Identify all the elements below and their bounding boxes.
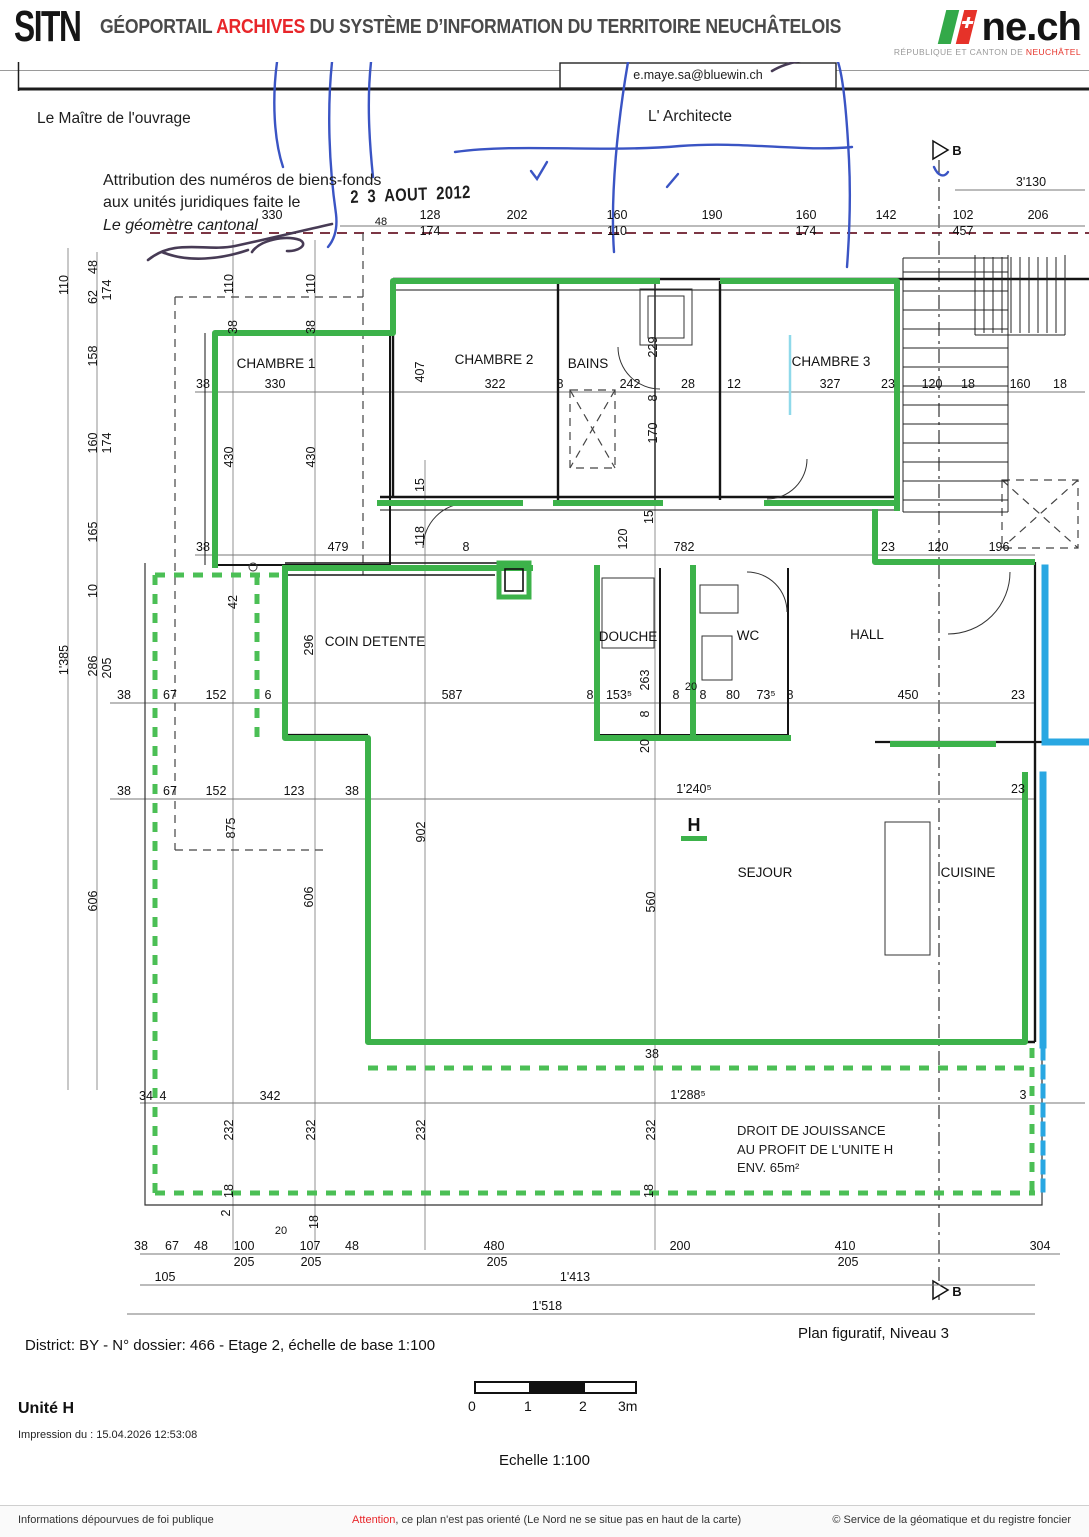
district-line: District: BY - N° dossier: 466 - Etage 2… <box>25 1337 435 1354</box>
other-unit-blue-boundary <box>1043 568 1089 1190</box>
dim-label: 479 <box>328 540 349 554</box>
dim-label: 1'413 <box>560 1270 590 1284</box>
dim-label: 170 <box>646 423 660 444</box>
dim-label: 606 <box>86 891 100 912</box>
dim-label: 48 <box>194 1239 208 1253</box>
dim-label: 8 <box>463 540 470 554</box>
dim-label: 80 <box>726 688 740 702</box>
dim-label: 67 <box>163 688 177 702</box>
dim-label: 110 <box>57 275 71 295</box>
room-label: WC <box>737 628 760 643</box>
dim-label: 606 <box>302 887 316 908</box>
walls <box>205 279 1089 1042</box>
dim-label: 23 <box>881 540 895 554</box>
dim-label: 28 <box>681 377 695 391</box>
dim-label: 174 <box>100 280 114 301</box>
impression-date: Impression du : 15.04.2026 12:53:08 <box>18 1429 197 1441</box>
dim-label: 205 <box>234 1255 255 1269</box>
dim-label: 118 <box>413 526 427 546</box>
dim-label: 18 <box>1053 377 1067 391</box>
dim-label: 200 <box>670 1239 691 1253</box>
jouissance-line2: AU PROFIT DE L'UNITE H <box>737 1141 893 1160</box>
dim-label: 174 <box>420 224 441 238</box>
dim-label: 120 <box>928 540 949 554</box>
dim-label: H <box>688 815 701 835</box>
dim-label: B <box>952 143 961 158</box>
unit-label: Unité H <box>18 1400 74 1418</box>
dim-label: 6 <box>265 688 272 702</box>
dim-label: 782 <box>674 540 695 554</box>
dim-label: 902 <box>414 822 428 843</box>
dim-label: 38 <box>134 1239 148 1253</box>
dim-label: 38 <box>304 320 318 334</box>
dim-label: 34 <box>139 1089 153 1103</box>
dim-label: 23 <box>1011 688 1025 702</box>
portal-title-post: DU SYSTÈME D’INFORMATION DU TERRITOIRE N… <box>305 16 841 38</box>
jouissance-note: DROIT DE JOUISSANCE AU PROFIT DE L'UNITE… <box>737 1122 893 1178</box>
dim-label: 8 <box>700 688 707 702</box>
unit-h-underline <box>681 836 707 841</box>
dim-label: 296 <box>302 635 316 656</box>
dim-label: 110 <box>304 274 318 294</box>
page-header: SITN GÉOPORTAIL ARCHIVES DU SYSTÈME D’IN… <box>0 0 1089 62</box>
dim-label: 430 <box>304 447 318 468</box>
owner-label: Le Maître de l'ouvrage <box>37 110 191 128</box>
dim-label: 18 <box>642 1184 656 1198</box>
dim-label: 38 <box>117 688 131 702</box>
dim-label: 110 <box>222 274 236 294</box>
dim-label: 190 <box>702 208 723 222</box>
nech-logo-row: ne.ch <box>894 4 1081 44</box>
dim-label: 67 <box>165 1239 179 1253</box>
dim-label: 8 <box>787 688 794 702</box>
dim-label: 8 <box>557 377 564 391</box>
dim-label: 160 <box>1010 377 1031 391</box>
dim-label: 232 <box>304 1120 318 1141</box>
dim-label: 73⁵ <box>756 688 775 702</box>
dim-label: 38 <box>117 784 131 798</box>
dim-label: 107 <box>300 1239 321 1253</box>
dim-label: 142 <box>876 208 897 222</box>
dim-label: 23 <box>881 377 895 391</box>
dim-label: 8 <box>646 394 660 401</box>
dim-label: 165 <box>86 522 100 543</box>
room-label: BAINS <box>568 356 609 371</box>
dim-label: 128 <box>420 208 441 222</box>
dim-label: 480 <box>484 1239 505 1253</box>
dim-label: 2 <box>219 1209 233 1216</box>
dim-label: 1'385 <box>57 645 71 675</box>
dim-label: 232 <box>222 1120 236 1141</box>
dim-label: 232 <box>414 1120 428 1141</box>
architect-label: L' Architecte <box>648 108 732 126</box>
dim-label: 174 <box>796 224 817 238</box>
dim-label: 105 <box>155 1270 176 1284</box>
dim-label: 38 <box>196 540 210 554</box>
dim-label: 8 <box>673 688 680 702</box>
email-text: e.maye.sa@bluewin.ch <box>560 63 836 88</box>
dim-label: 42 <box>226 595 240 609</box>
nech-subtitle-canton: NEUCHÂTEL <box>1026 47 1081 57</box>
portal-title-archives: ARCHIVES <box>216 16 305 38</box>
nech-wordmark: ne.ch <box>982 10 1081 44</box>
attribution-line1: Attribution des numéros de biens-fonds <box>103 172 381 190</box>
dim-label: 242 <box>620 377 641 391</box>
dim-label: 15 <box>642 510 656 524</box>
dim-label: 18 <box>961 377 975 391</box>
dim-label: 205 <box>838 1255 859 1269</box>
dim-label: 38 <box>645 1047 659 1061</box>
dim-label: 196 <box>989 540 1010 554</box>
dim-label: B <box>952 1284 961 1299</box>
dim-label: 18 <box>307 1215 321 1229</box>
dim-label: 174 <box>100 433 114 454</box>
room-label: SEJOUR <box>738 865 793 880</box>
nech-subtitle-pre: RÉPUBLIQUE ET CANTON DE <box>894 47 1026 57</box>
dim-label: 153⁵ <box>606 688 632 702</box>
dim-label: 232 <box>644 1120 658 1141</box>
scale-label: Echelle 1:100 <box>0 1452 1089 1469</box>
dim-label: 3 <box>1020 1088 1027 1102</box>
nech-flag-green-bar <box>937 10 958 44</box>
attribution-line2: aux unités juridiques faite le <box>103 194 300 212</box>
dim-label: 120 <box>616 529 630 550</box>
dim-label: 1'240⁵ <box>676 782 711 796</box>
dim-label: 160 <box>796 208 817 222</box>
dim-label: 407 <box>413 362 427 383</box>
dim-label: 23 <box>1011 782 1025 796</box>
room-label: CHAMBRE 2 <box>455 352 534 367</box>
terrace-outline <box>145 563 1042 1205</box>
dim-label: 263 <box>638 670 652 691</box>
dim-label: 8 <box>638 710 652 717</box>
dim-label: 158 <box>86 346 100 367</box>
dim-label: 120 <box>922 377 943 391</box>
dim-label: 160 <box>86 433 100 454</box>
dim-label: 152 <box>206 784 227 798</box>
dim-label: 410 <box>835 1239 856 1253</box>
nech-subtitle: RÉPUBLIQUE ET CANTON DE NEUCHÂTEL <box>894 47 1081 57</box>
dim-label: 48 <box>375 216 387 228</box>
dim-label: 330 <box>265 377 286 391</box>
room-label: HALL <box>850 627 884 642</box>
dim-label: 110 <box>607 224 627 238</box>
section-marker-top-icon <box>933 141 948 159</box>
dim-label: 587 <box>442 688 463 702</box>
dim-label: 20 <box>638 739 652 753</box>
dim-label: 38 <box>196 377 210 391</box>
dim-label: 286 <box>86 656 100 677</box>
dim-label: 160 <box>607 208 628 222</box>
section-marker-bottom-icon <box>933 1281 948 1299</box>
dim-label: 62 <box>86 290 100 304</box>
nech-logo: ne.ch RÉPUBLIQUE ET CANTON DE NEUCHÂTEL <box>894 4 1081 57</box>
plan-border <box>18 62 1089 91</box>
jouissance-line1: DROIT DE JOUISSANCE <box>737 1122 893 1141</box>
dim-label: 48 <box>345 1239 359 1253</box>
jouissance-line3: ENV. 65m² <box>737 1159 893 1178</box>
room-label: CHAMBRE 3 <box>792 354 871 369</box>
dim-label: 304 <box>1030 1239 1051 1253</box>
dim-label: 327 <box>820 377 841 391</box>
dim-label: 229 <box>646 337 660 358</box>
nech-flag-red-bar <box>955 10 976 44</box>
dim-label: 100 <box>234 1239 255 1253</box>
dim-label: 206 <box>1028 208 1049 222</box>
dim-label: 450 <box>898 688 919 702</box>
swiss-cross-icon <box>960 17 974 28</box>
unit-h-green-boundary <box>215 281 1032 1042</box>
green-square-inner <box>505 569 523 591</box>
dim-label: 875 <box>224 818 238 839</box>
dim-label: 102 <box>953 208 974 222</box>
dim-label: 1'518 <box>532 1299 562 1313</box>
dim-label: 12 <box>727 377 741 391</box>
dim-label: 457 <box>953 224 974 238</box>
sitn-logo: SITN <box>14 2 80 52</box>
dim-label: 430 <box>222 447 236 468</box>
plan-caption: Plan figuratif, Niveau 3 <box>798 1325 949 1342</box>
labels-layer: 3'13033048128202160190160142102206174110… <box>57 143 1067 1313</box>
dim-label: 20 <box>275 1225 287 1237</box>
dim-label: 560 <box>644 892 658 913</box>
dim-label: 123 <box>284 784 305 798</box>
dim-label: 205 <box>487 1255 508 1269</box>
dim-label: 322 <box>485 377 506 391</box>
dim-label: 205 <box>100 658 114 679</box>
dim-label: 48 <box>86 260 100 274</box>
attribution-line3: Le géomètre cantonal <box>103 217 258 235</box>
dim-label: 18 <box>222 1184 236 1198</box>
dim-label: 1'288⁵ <box>670 1088 705 1102</box>
dim-label: 10 <box>86 584 100 598</box>
dim-label: 15 <box>413 478 427 492</box>
room-label: COIN DETENTE <box>325 634 426 649</box>
dim-label: 38 <box>345 784 359 798</box>
portal-title-pre: GÉOPORTAIL <box>100 16 216 38</box>
room-label: CUISINE <box>941 865 996 880</box>
dim-label: 205 <box>301 1255 322 1269</box>
dim-label: 20 <box>685 681 697 693</box>
dim-label: 3'130 <box>1016 175 1046 189</box>
portal-title: GÉOPORTAIL ARCHIVES DU SYSTÈME D’INFORMA… <box>100 16 841 39</box>
dim-label: 8 <box>587 688 594 702</box>
dim-label: 152 <box>206 688 227 702</box>
dim-label: 4 <box>160 1089 167 1103</box>
room-label: CHAMBRE 1 <box>237 356 316 371</box>
dim-label: 202 <box>507 208 528 222</box>
dim-label: 342 <box>260 1089 281 1103</box>
dim-label: 67 <box>163 784 177 798</box>
room-label: DOUCHE <box>599 629 658 644</box>
dim-label: 38 <box>226 320 240 334</box>
